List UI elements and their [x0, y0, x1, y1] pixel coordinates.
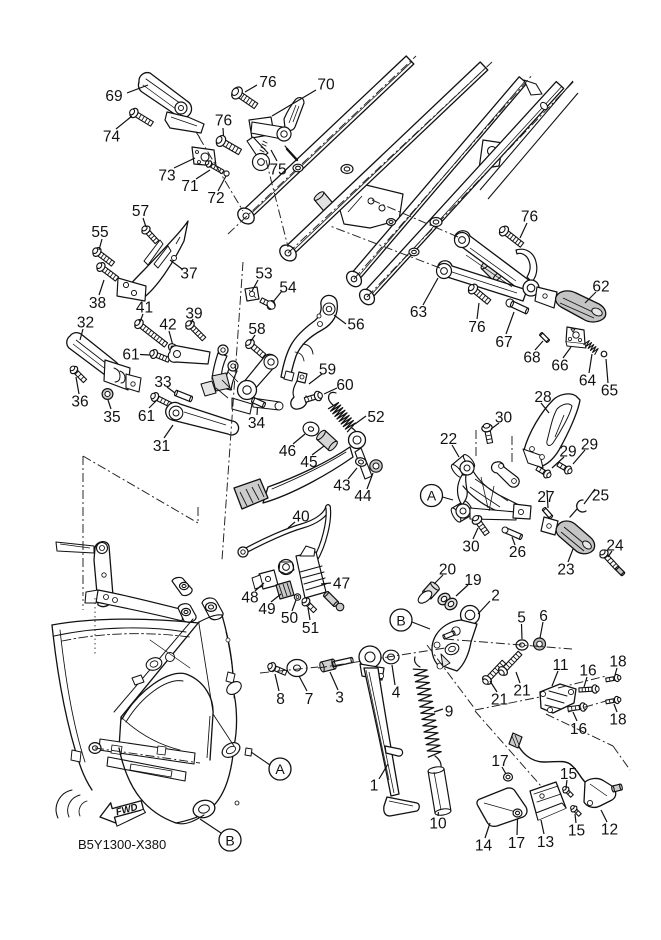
- svg-text:59: 59: [319, 362, 336, 379]
- svg-text:27: 27: [537, 489, 554, 506]
- svg-text:31: 31: [153, 438, 170, 455]
- svg-text:37: 37: [180, 266, 197, 283]
- svg-text:7: 7: [305, 691, 314, 708]
- svg-text:21: 21: [491, 692, 508, 709]
- svg-text:39: 39: [185, 306, 202, 323]
- svg-text:74: 74: [103, 129, 121, 146]
- svg-text:57: 57: [132, 203, 149, 220]
- svg-text:16: 16: [579, 663, 596, 680]
- svg-text:65: 65: [601, 383, 618, 400]
- svg-text:45: 45: [300, 454, 317, 471]
- svg-text:B: B: [396, 613, 405, 629]
- svg-text:71: 71: [181, 178, 198, 195]
- svg-text:18: 18: [609, 654, 626, 671]
- svg-text:17: 17: [508, 835, 525, 852]
- svg-text:28: 28: [534, 389, 551, 406]
- svg-text:48: 48: [241, 590, 258, 607]
- svg-text:24: 24: [606, 538, 624, 555]
- svg-text:A: A: [275, 761, 285, 777]
- svg-text:22: 22: [440, 431, 457, 448]
- svg-text:70: 70: [317, 77, 335, 94]
- svg-text:51: 51: [302, 620, 319, 637]
- svg-text:34: 34: [248, 415, 266, 432]
- svg-text:76: 76: [521, 209, 538, 226]
- svg-text:A: A: [427, 488, 437, 504]
- svg-text:B: B: [225, 833, 234, 849]
- svg-text:B5Y1300-X380: B5Y1300-X380: [78, 837, 166, 852]
- svg-text:67: 67: [495, 334, 512, 351]
- svg-text:64: 64: [579, 373, 597, 390]
- svg-text:16: 16: [570, 721, 587, 738]
- svg-text:61: 61: [138, 408, 155, 425]
- svg-text:44: 44: [354, 488, 372, 505]
- svg-text:35: 35: [103, 409, 120, 426]
- svg-text:8: 8: [276, 691, 285, 708]
- svg-text:68: 68: [523, 350, 540, 367]
- svg-text:1: 1: [370, 778, 379, 795]
- svg-text:52: 52: [367, 409, 384, 426]
- svg-text:5: 5: [517, 610, 526, 627]
- svg-text:10: 10: [429, 816, 447, 833]
- svg-text:26: 26: [509, 544, 526, 561]
- svg-text:15: 15: [560, 766, 577, 783]
- svg-text:12: 12: [601, 822, 618, 839]
- svg-text:53: 53: [255, 266, 272, 283]
- svg-text:47: 47: [333, 576, 350, 593]
- svg-text:75: 75: [269, 162, 286, 179]
- svg-text:58: 58: [248, 321, 265, 338]
- svg-text:15: 15: [568, 823, 585, 840]
- svg-text:66: 66: [551, 358, 568, 375]
- svg-text:49: 49: [258, 601, 275, 618]
- svg-text:40: 40: [292, 509, 310, 526]
- svg-text:23: 23: [557, 562, 574, 579]
- svg-text:3: 3: [335, 690, 344, 707]
- svg-text:17: 17: [491, 753, 508, 770]
- svg-text:43: 43: [333, 478, 350, 495]
- svg-text:76: 76: [215, 113, 232, 130]
- svg-text:38: 38: [89, 295, 106, 312]
- svg-text:54: 54: [279, 280, 297, 297]
- svg-text:21: 21: [513, 683, 530, 700]
- svg-text:55: 55: [91, 224, 108, 241]
- svg-text:41: 41: [136, 300, 153, 317]
- svg-text:56: 56: [347, 317, 364, 334]
- svg-text:76: 76: [468, 319, 485, 336]
- svg-text:60: 60: [336, 377, 354, 394]
- svg-text:9: 9: [445, 704, 454, 721]
- svg-text:36: 36: [71, 394, 88, 411]
- svg-text:50: 50: [281, 610, 299, 627]
- svg-text:46: 46: [279, 443, 296, 460]
- svg-text:63: 63: [410, 304, 427, 321]
- svg-text:32: 32: [77, 315, 94, 332]
- svg-text:73: 73: [158, 168, 175, 185]
- svg-text:61: 61: [122, 347, 139, 364]
- svg-text:18: 18: [609, 712, 626, 729]
- svg-text:4: 4: [392, 685, 401, 702]
- svg-text:72: 72: [207, 190, 224, 207]
- svg-text:13: 13: [537, 834, 554, 851]
- svg-text:29: 29: [559, 444, 576, 461]
- svg-text:69: 69: [105, 88, 122, 105]
- svg-text:14: 14: [475, 838, 493, 855]
- svg-text:11: 11: [552, 657, 568, 674]
- svg-text:2: 2: [491, 588, 500, 605]
- svg-text:30: 30: [462, 539, 480, 556]
- svg-text:42: 42: [159, 317, 176, 334]
- svg-text:76: 76: [259, 74, 276, 91]
